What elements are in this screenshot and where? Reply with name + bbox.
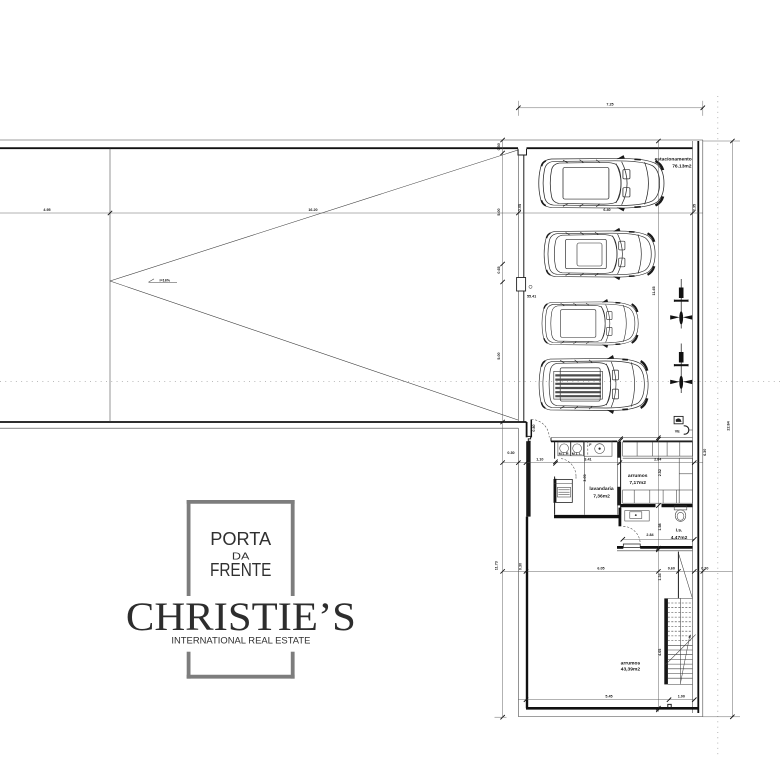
svg-text:3.41: 3.41 xyxy=(584,457,591,461)
svg-text:i.s.: i.s. xyxy=(676,528,683,534)
svg-text:43,39m2: 43,39m2 xyxy=(621,667,641,673)
svg-text:arrumos: arrumos xyxy=(628,473,648,479)
svg-text:0.30: 0.30 xyxy=(507,451,514,455)
svg-text:0.65: 0.65 xyxy=(497,266,501,273)
svg-text:FRENTE: FRENTE xyxy=(210,559,272,580)
svg-text:0.50: 0.50 xyxy=(497,143,501,150)
svg-text:3.05: 3.05 xyxy=(583,474,587,481)
svg-text:CHRISTIE’S: CHRISTIE’S xyxy=(126,594,356,639)
svg-text:6.40: 6.40 xyxy=(603,208,610,212)
svg-text:1.10: 1.10 xyxy=(536,457,543,461)
svg-text:16.20: 16.20 xyxy=(308,208,317,212)
svg-text:22.84: 22.84 xyxy=(726,420,730,430)
svg-text:2.84: 2.84 xyxy=(654,457,662,461)
svg-text:5.00: 5.00 xyxy=(497,352,501,359)
svg-text:7.25: 7.25 xyxy=(606,102,613,106)
svg-text:0.80: 0.80 xyxy=(532,424,536,431)
svg-text:7,36m2: 7,36m2 xyxy=(593,494,610,500)
svg-text:76.13m2: 76.13m2 xyxy=(672,163,692,169)
svg-text:estacionamento: estacionamento xyxy=(655,157,692,163)
svg-text:lavandaria: lavandaria xyxy=(589,486,613,492)
svg-text:F: F xyxy=(589,443,592,447)
svg-text:0.60: 0.60 xyxy=(668,566,675,570)
svg-text:M.L.L.: M.L.L. xyxy=(572,452,583,456)
svg-text:i=16%: i=16% xyxy=(160,278,171,282)
svg-text:PORTA: PORTA xyxy=(210,528,272,549)
svg-text:2.05: 2.05 xyxy=(518,204,522,211)
svg-text:11.45: 11.45 xyxy=(652,286,656,295)
svg-text:M.L.R.: M.L.R. xyxy=(559,452,570,456)
svg-text:4.65: 4.65 xyxy=(658,649,662,656)
svg-text:VE: VE xyxy=(675,429,680,433)
svg-text:7,17m2: 7,17m2 xyxy=(629,480,646,486)
svg-text:1.34: 1.34 xyxy=(658,572,662,580)
svg-text:4.95: 4.95 xyxy=(43,208,50,212)
svg-text:1.00: 1.00 xyxy=(678,695,685,699)
svg-text:0.30: 0.30 xyxy=(701,566,708,570)
svg-text:INTERNATIONAL REAL ESTATE: INTERNATIONAL REAL ESTATE xyxy=(171,636,310,646)
svg-text:5.45: 5.45 xyxy=(605,695,612,699)
svg-text:arrumos: arrumos xyxy=(621,660,641,666)
svg-text:4,47m2: 4,47m2 xyxy=(671,535,688,541)
svg-text:2.35: 2.35 xyxy=(693,204,697,211)
svg-text:6.05: 6.05 xyxy=(597,566,604,570)
svg-text:6.30: 6.30 xyxy=(703,449,707,456)
svg-text:11.73: 11.73 xyxy=(495,561,499,570)
svg-text:0.30: 0.30 xyxy=(519,563,523,570)
svg-text:55.41: 55.41 xyxy=(527,295,536,299)
svg-text:2.84: 2.84 xyxy=(646,533,654,537)
svg-text:5.00: 5.00 xyxy=(497,208,501,215)
